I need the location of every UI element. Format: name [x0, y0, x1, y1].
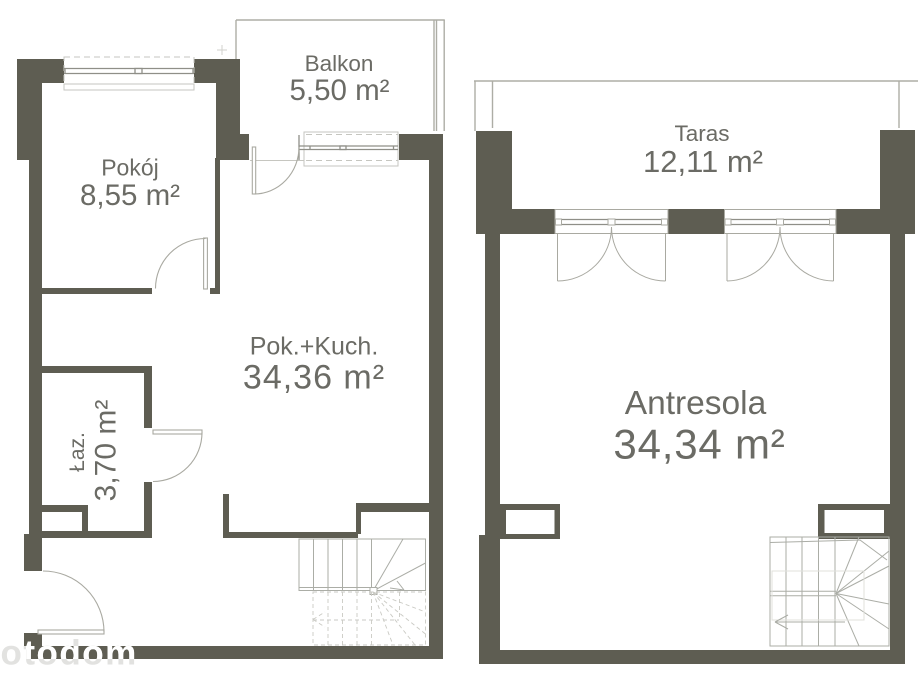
svg-text:12,11 m²: 12,11 m²: [643, 144, 763, 179]
svg-text:8,55 m²: 8,55 m²: [80, 179, 180, 212]
svg-text:34,34 m²: 34,34 m²: [613, 421, 785, 468]
svg-text:5,50 m²: 5,50 m²: [289, 74, 389, 107]
svg-text:Pokój: Pokój: [101, 155, 159, 181]
svg-text:34,36 m²: 34,36 m²: [243, 359, 385, 397]
svg-text:Balkon: Balkon: [305, 51, 374, 76]
svg-text:Pok.+Kuch.: Pok.+Kuch.: [250, 333, 379, 361]
svg-text:Taras: Taras: [674, 121, 729, 146]
svg-text:Łaz.: Łaz.: [66, 432, 89, 472]
svg-text:Antresola: Antresola: [625, 385, 767, 422]
svg-text:3,70 m²: 3,70 m²: [90, 400, 123, 502]
